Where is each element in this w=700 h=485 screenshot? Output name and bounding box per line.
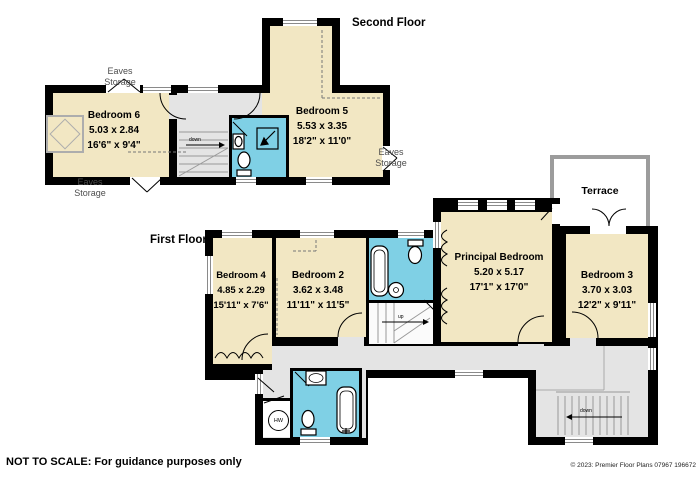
- second-floor-staircase: down: [179, 132, 228, 176]
- eaves-line1: Eaves: [60, 177, 120, 188]
- stair-arrowhead: [566, 414, 572, 420]
- hw-label: HW: [274, 418, 283, 424]
- bedroom5-label: Bedroom 5 5.53 x 3.35 18'2" x 11'0": [272, 104, 372, 149]
- door-leaf-vestibule: [258, 378, 274, 392]
- door-arc-principal: [518, 316, 544, 342]
- bedroom3-label: Bedroom 3 3.70 x 3.03 12'2" x 9'11": [566, 268, 648, 313]
- bedroom2-imperial: 11'11" x 11'5": [272, 298, 364, 313]
- door-arc-bedroom5: [234, 93, 260, 119]
- first-floor-label: First Floor: [150, 234, 207, 246]
- bedroom5-name: Bedroom 5: [272, 104, 372, 119]
- stair-label-down: down: [580, 408, 592, 414]
- sink-icon: [389, 283, 404, 298]
- bedroom2-label: Bedroom 2 3.62 x 3.48 11'11" x 11'5": [272, 268, 364, 313]
- bedroom4-label: Bedroom 4 4.85 x 2.29 15'11" x 7'6": [204, 268, 278, 313]
- eaves-storage-label-bottom: Eaves Storage: [60, 177, 120, 199]
- toilet-icon: [409, 247, 422, 264]
- eaves-line1: Eaves: [366, 147, 416, 158]
- stair-label-up: up: [398, 314, 404, 320]
- toilet-cistern: [408, 240, 423, 246]
- eaves-line2: Storage: [366, 158, 416, 169]
- stair-arrowhead: [219, 142, 225, 148]
- principal-bedroom-name: Principal Bedroom: [443, 250, 555, 265]
- door-leaf-hw-cupboard: [264, 396, 284, 403]
- eaves-door-bottom: [132, 178, 162, 192]
- bedroom2-name: Bedroom 2: [272, 268, 364, 283]
- bedroom6-label: Bedroom 6 5.03 x 2.84 16'6" x 9'4": [62, 108, 166, 153]
- bedroom6-name: Bedroom 6: [62, 108, 166, 123]
- door-arc-bedroom4: [242, 334, 268, 360]
- door-arcs: [160, 93, 626, 403]
- principal-bedroom-imperial: 17'1" x 17'0": [443, 280, 555, 295]
- toilet-icon: [302, 411, 314, 428]
- door-leaf-ff-bathroom: [424, 300, 437, 313]
- eaves-line1: Eaves: [90, 66, 150, 77]
- dashed-line-bedroom2-closet: [293, 240, 316, 251]
- copyright-note: © 2023: Premier Floor Plans 07967 196672: [571, 462, 696, 469]
- principal-bedroom-metric: 5.20 x 5.17: [443, 265, 555, 280]
- bedroom4-metric: 4.85 x 2.29: [204, 283, 278, 298]
- floorplan-canvas: down up down: [0, 0, 700, 485]
- bedroom5-imperial: 18'2" x 11'0": [272, 134, 372, 149]
- door-arc-bedroom3: [572, 312, 598, 338]
- second-floor-label: Second Floor: [352, 17, 425, 29]
- stair-void-edge: [536, 346, 604, 390]
- bathtub-icon: [371, 246, 388, 296]
- hot-water-cylinder-icon: HW: [268, 410, 289, 431]
- stair-treads: [558, 396, 628, 435]
- bedroom3-imperial: 12'2" x 9'11": [566, 298, 648, 313]
- wardrobe-bedroom4: [215, 353, 263, 359]
- scale-disclaimer: NOT TO SCALE: For guidance purposes only: [6, 456, 242, 468]
- bedroom4-name: Bedroom 4: [204, 268, 278, 283]
- first-floor-staircase-down: down: [536, 346, 630, 435]
- toilet-cistern: [237, 170, 251, 176]
- french-door-arc-left: [592, 209, 609, 226]
- principal-bedroom-label: Principal Bedroom 5.20 x 5.17 17'1" x 17…: [443, 250, 555, 295]
- dashed-line-bedroom5: [322, 30, 380, 98]
- toilet-icon: [238, 152, 250, 168]
- toilet-cistern: [301, 429, 316, 435]
- bedroom6-metric: 5.03 x 2.84: [62, 123, 166, 138]
- bedroom3-metric: 3.70 x 3.03: [566, 283, 648, 298]
- terrace-label: Terrace: [570, 184, 630, 199]
- bedroom6-imperial: 16'6" x 9'4": [62, 138, 166, 153]
- bedroom2-metric: 3.62 x 3.48: [272, 283, 364, 298]
- french-door-arc-right: [609, 209, 626, 226]
- first-floor-staircase-up: up: [378, 303, 430, 343]
- eaves-storage-label-top: Eaves Storage: [90, 66, 150, 88]
- bedroom3-name: Bedroom 3: [566, 268, 648, 283]
- stair-treads: [378, 303, 394, 343]
- stair-label-down: down: [189, 137, 201, 143]
- door-arc-bedroom2: [338, 313, 362, 337]
- bedroom4-imperial: 15'11" x 7'6": [204, 298, 278, 313]
- eaves-storage-label-right: Eaves Storage: [366, 147, 416, 169]
- door-leaf-terrace: [541, 208, 552, 220]
- bedroom5-metric: 5.53 x 3.35: [272, 119, 372, 134]
- sink-basin-icon: [235, 137, 242, 147]
- eaves-line2: Storage: [60, 188, 120, 199]
- stair-winders: [394, 307, 430, 343]
- eaves-line2: Storage: [90, 77, 150, 88]
